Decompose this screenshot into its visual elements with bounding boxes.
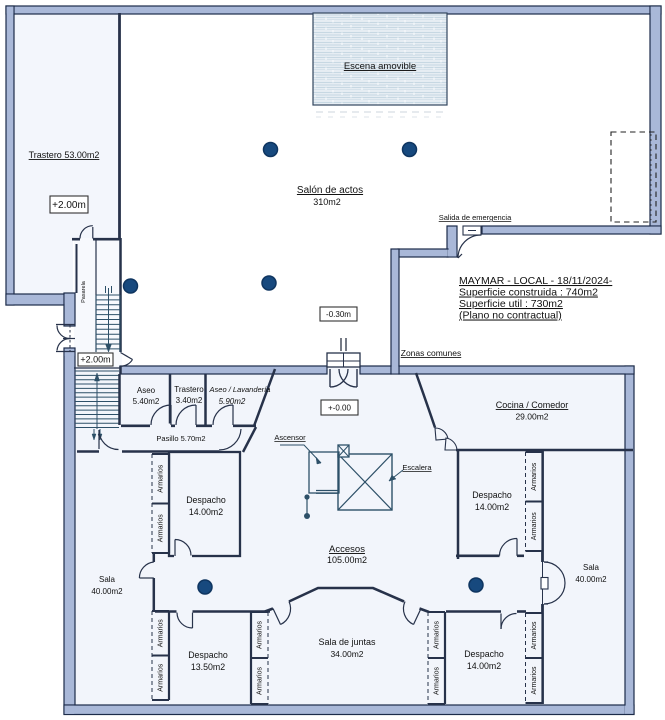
svg-text:Armarios: Armarios [434,667,441,696]
svg-text:Superficie util : 730m2: Superficie util : 730m2 [459,298,563,310]
svg-text:+2.00m: +2.00m [52,200,86,211]
svg-text:Escalera: Escalera [402,463,432,472]
svg-text:Sala: Sala [583,563,600,572]
svg-text:310m2: 310m2 [313,197,341,207]
svg-text:(Plano no contractual): (Plano no contractual) [459,310,562,322]
svg-text:Pasarela: Pasarela [81,280,87,303]
svg-text:Cocina / Comedor: Cocina / Comedor [496,400,569,410]
svg-text:Superficie construida : 740m2: Superficie construida : 740m2 [459,287,598,299]
svg-text:Despacho: Despacho [188,650,228,660]
svg-text:Zonas comunes: Zonas comunes [401,348,461,358]
svg-text:Despacho: Despacho [186,495,226,505]
svg-text:Armarios: Armarios [531,512,538,541]
svg-text:40.00m2: 40.00m2 [575,575,607,584]
svg-text:Aseo / Lavandería: Aseo / Lavandería [209,385,271,394]
svg-text:Trastero: Trastero [174,385,204,394]
svg-text:34.00m2: 34.00m2 [330,649,363,659]
svg-text:Sala: Sala [99,575,116,584]
svg-text:40.00m2: 40.00m2 [91,587,123,596]
svg-text:Armarios: Armarios [158,619,165,648]
svg-text:13.50m2: 13.50m2 [191,662,225,672]
svg-text:29.00m2: 29.00m2 [515,412,548,422]
svg-text:+2.00m: +2.00m [80,355,110,365]
svg-text:Aseo: Aseo [137,386,156,395]
svg-text:Salida de emergencia: Salida de emergencia [439,213,512,222]
svg-text:Armarios: Armarios [158,663,165,692]
svg-text:Accesos: Accesos [329,544,365,555]
svg-text:+-0.00: +-0.00 [328,403,351,412]
svg-text:Ascensor: Ascensor [274,433,306,442]
svg-text:Despacho: Despacho [472,490,512,500]
svg-text:Armarios: Armarios [531,666,538,695]
svg-text:Sala de juntas: Sala de juntas [318,637,376,647]
svg-text:Escena amovible: Escena amovible [344,61,416,72]
svg-text:14.00m2: 14.00m2 [475,502,509,512]
svg-text:Armarios: Armarios [434,621,441,650]
svg-text:5.90m2: 5.90m2 [219,397,246,406]
svg-text:14.00m2: 14.00m2 [467,661,501,671]
svg-text:Salón de actos: Salón de actos [297,185,363,196]
svg-text:105.00m2: 105.00m2 [327,555,367,565]
svg-text:Armarios: Armarios [531,462,538,491]
svg-text:Armarios: Armarios [257,667,264,696]
svg-text:Trastero 53.00m2: Trastero 53.00m2 [29,150,100,160]
svg-text:-0.30m: -0.30m [326,310,351,319]
svg-text:3.40m2: 3.40m2 [176,396,203,405]
svg-text:Pasillo 5.70m2: Pasillo 5.70m2 [156,434,205,443]
svg-text:Armarios: Armarios [158,514,165,543]
svg-text:Armarios: Armarios [158,464,165,493]
svg-text:Despacho: Despacho [464,649,504,659]
svg-text:MAYMAR - LOCAL - 18/11/2024-: MAYMAR - LOCAL - 18/11/2024- [459,275,613,287]
svg-text:Armarios: Armarios [531,621,538,650]
svg-text:Armarios: Armarios [257,621,264,650]
svg-text:5.40m2: 5.40m2 [133,397,160,406]
svg-text:14.00m2: 14.00m2 [189,507,223,517]
